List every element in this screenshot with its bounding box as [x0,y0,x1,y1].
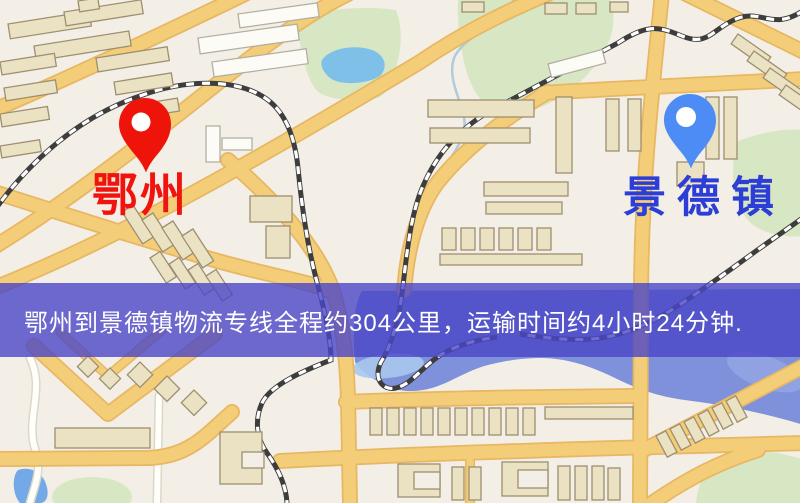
destination-label: 景德镇 [608,177,800,220]
lake [321,47,384,83]
origin-label: 鄂州 [52,172,228,218]
route-info-banner: 鄂州到景德镇物流专线全程约304公里，运输时间约4小时24分钟. [0,283,800,357]
route-info-text: 鄂州到景德镇物流专线全程约304公里，运输时间约4小时24分钟. [24,303,743,338]
map-canvas [0,0,800,503]
map-image: 鄂州 景德镇 鄂州到景德镇物流专线全程约304公里，运输时间约4小时24分钟. [0,0,800,503]
